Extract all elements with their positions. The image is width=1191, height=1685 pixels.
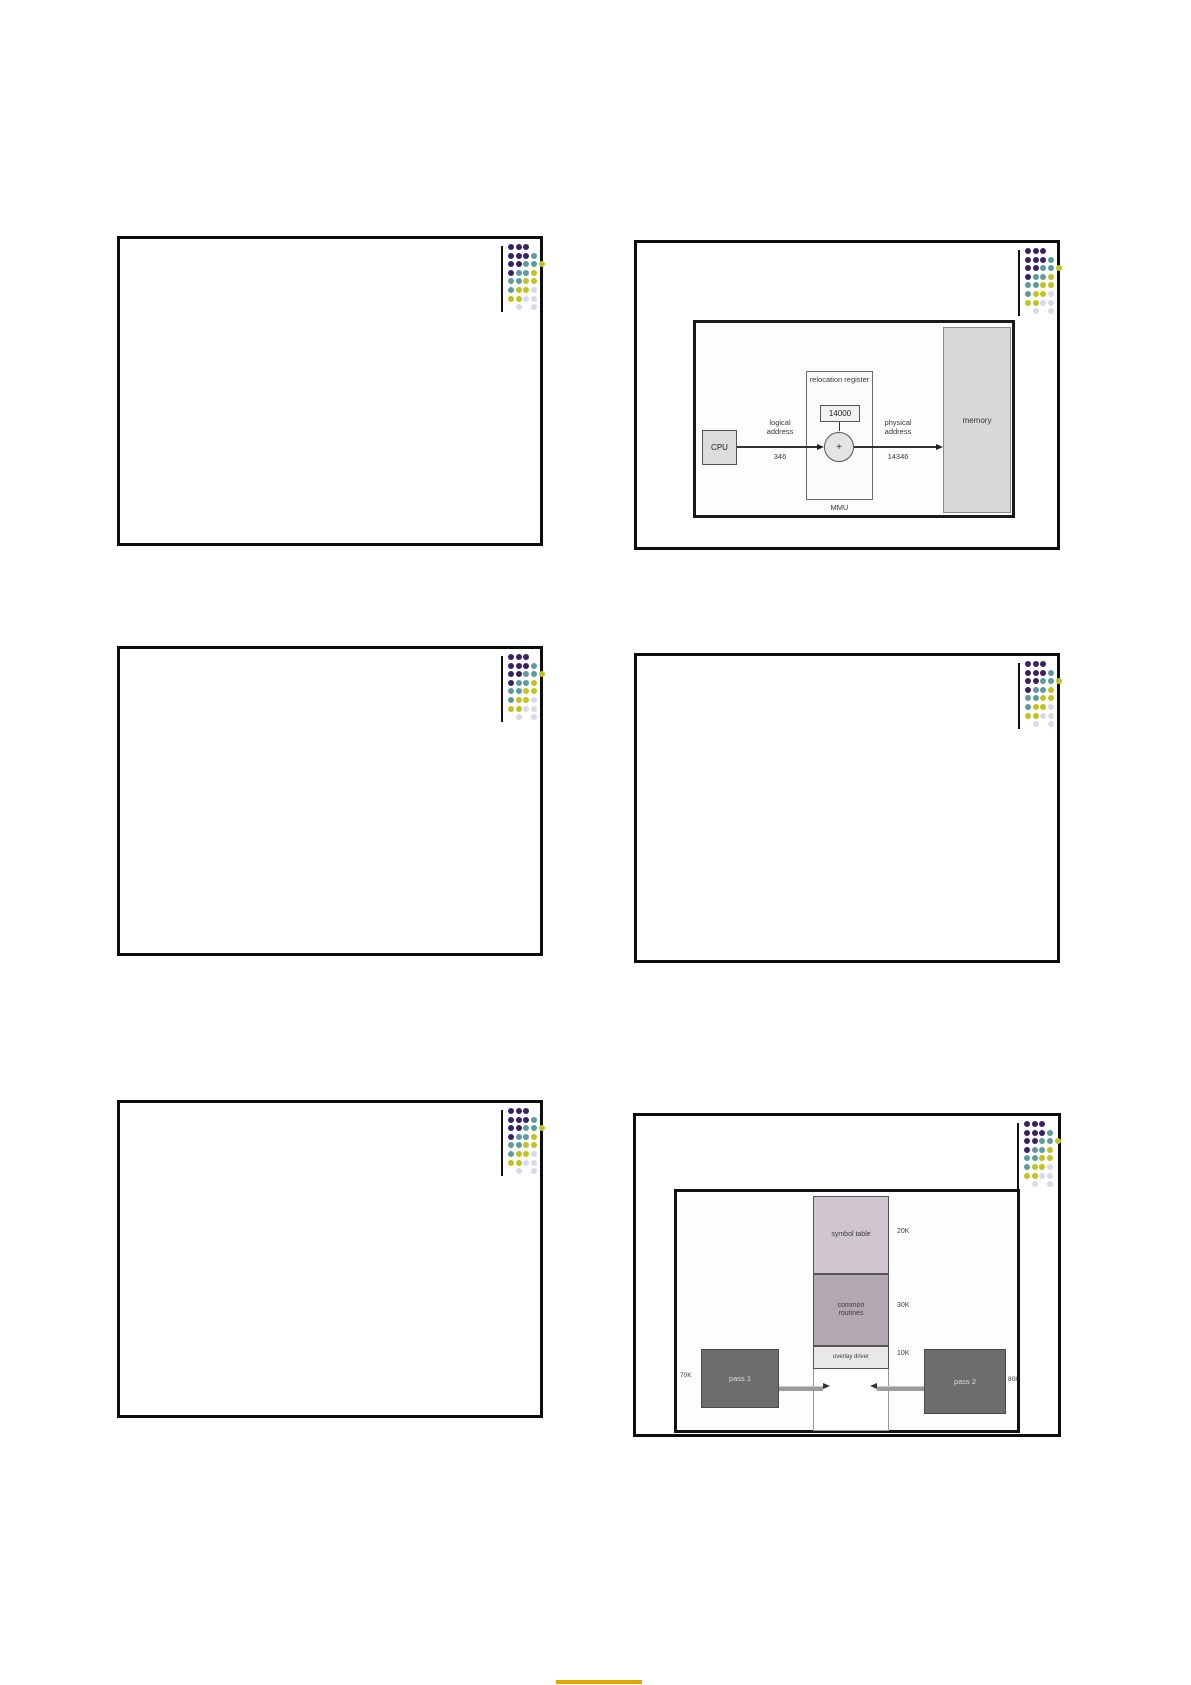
slide-6: symbol table common routines overlay dri…	[633, 1113, 1061, 1437]
slide-4	[634, 653, 1060, 963]
relocation-register-label: relocation register	[808, 376, 871, 385]
memory-label: memory	[963, 416, 992, 425]
logical-address-value: 346	[755, 453, 805, 462]
relocation-diagram-frame: CPU relocation register 14000 + MMU memo…	[693, 320, 1015, 518]
logical-address-arrow-line	[737, 446, 821, 448]
pass1-size: 70K	[680, 1372, 692, 1379]
memory-box: memory	[943, 327, 1011, 513]
pass2-arrowhead-icon	[870, 1383, 877, 1389]
pass2-arrow-shaft	[877, 1386, 924, 1391]
common-routines-label: common routines	[826, 1302, 876, 1318]
relocation-register-value-box: 14000	[820, 405, 860, 422]
pass1-arrow-shaft	[779, 1386, 823, 1391]
slide-3	[117, 646, 543, 956]
overlay-driver-label: overlay driver	[831, 1354, 871, 1361]
logo-line	[501, 246, 503, 312]
logo-dot-grid-icon	[1025, 661, 1063, 730]
symbol-table-box: symbol table	[813, 1196, 889, 1274]
logical-address-arrowhead-icon	[817, 444, 824, 450]
symbol-table-label: symbol table	[828, 1231, 874, 1239]
logo-line	[1017, 1123, 1019, 1189]
plus-label: +	[836, 442, 842, 453]
cpu-box: CPU	[702, 430, 737, 465]
common-routines-size: 30K	[897, 1302, 909, 1309]
page-footer-mark	[556, 1680, 642, 1684]
physical-address-arrow-line	[854, 446, 940, 448]
slide-1	[117, 236, 543, 546]
pass1-box: pass 1	[701, 1349, 779, 1408]
slide-2: CPU relocation register 14000 + MMU memo…	[634, 240, 1060, 550]
logo-dot-grid-icon	[508, 244, 546, 313]
overlay-diagram-frame: symbol table common routines overlay dri…	[674, 1189, 1020, 1433]
pass1-arrowhead-icon	[823, 1383, 830, 1389]
pass2-box: pass 2	[924, 1349, 1006, 1414]
pass2-label: pass 2	[954, 1377, 976, 1386]
pass2-size: 80K	[1008, 1376, 1020, 1383]
logo-line	[1018, 250, 1020, 316]
logo-line	[501, 1110, 503, 1176]
symbol-table-size: 20K	[897, 1228, 909, 1235]
physical-address-arrowhead-icon	[936, 444, 943, 450]
logo-dot-grid-icon	[508, 654, 546, 723]
slide-5	[117, 1100, 543, 1418]
handout-page: CPU relocation register 14000 + MMU memo…	[0, 0, 1191, 1685]
adder-circle: +	[824, 432, 854, 462]
overlay-driver-size: 10K	[897, 1350, 909, 1357]
common-routines-box: common routines	[813, 1274, 889, 1346]
register-to-adder-line	[839, 422, 840, 431]
overlay-empty-region	[813, 1369, 889, 1431]
physical-address-value: 14346	[873, 453, 923, 462]
overlay-driver-box: overlay driver	[813, 1346, 889, 1369]
logo-dot-grid-icon	[508, 1108, 546, 1177]
relocation-register-value: 14000	[829, 409, 851, 418]
logical-address-label: logical address	[755, 419, 805, 436]
physical-address-label: physical address	[873, 419, 923, 436]
logo-dot-grid-icon	[1024, 1121, 1062, 1190]
logo-dot-grid-icon	[1025, 248, 1063, 317]
logo-line	[501, 656, 503, 722]
pass1-label: pass 1	[729, 1374, 751, 1383]
logo-line	[1018, 663, 1020, 729]
cpu-label: CPU	[711, 443, 728, 452]
mmu-label: MMU	[806, 504, 873, 513]
